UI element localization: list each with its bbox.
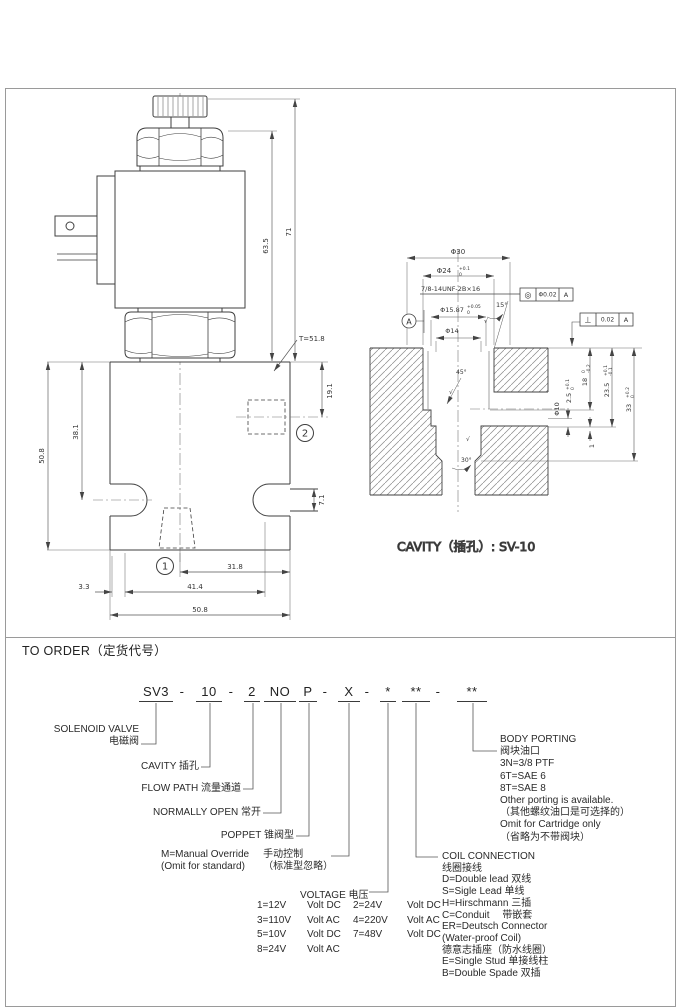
- dim-depth-18: 18: [581, 378, 589, 386]
- voltage-cell: Volt AC: [307, 944, 353, 955]
- datum-a: A: [402, 310, 424, 333]
- code-seg-flow-path: 2: [244, 684, 260, 702]
- second-terminal: [57, 254, 97, 260]
- voltage-cell: 5=10V: [257, 929, 307, 940]
- dim-edge-gap: 3.3: [78, 583, 89, 591]
- code-seg-voltage: *: [380, 684, 396, 702]
- voltage-cell: 4=220V: [353, 915, 407, 926]
- dim-depth-33-sub: 0: [630, 395, 636, 398]
- porting-item: （省略为不带阀块）: [500, 832, 630, 844]
- dim-depth-18-sub: -0.2: [586, 364, 592, 373]
- coil-item: 德意志插座（防水线圈）: [442, 945, 552, 957]
- dim-1: 1: [588, 444, 596, 448]
- dim-d24: Φ24: [437, 267, 452, 275]
- dim-d10: Φ10: [553, 402, 561, 415]
- code-seg-manual-override: X: [338, 684, 360, 702]
- dim-d14: Φ14: [445, 327, 458, 335]
- porting-item: 6T=SAE 6: [500, 771, 630, 783]
- gdt-conc-datum: A: [564, 291, 569, 299]
- dim-d24-sub: 0: [459, 272, 462, 278]
- code-sep: -: [433, 684, 443, 701]
- coil-item: H=Hirschmann 三插: [442, 898, 552, 910]
- gdt-perp-value: 0.02: [601, 317, 615, 324]
- porting-heading-zh: 阀块油口: [500, 746, 630, 758]
- port1-balloon: 1: [162, 562, 168, 573]
- angle-15: 15°: [496, 301, 508, 309]
- connector-plate: [97, 176, 115, 284]
- gdt-concentricity: ◎ Φ0.02 A: [520, 288, 573, 301]
- code-seg-body-porting: **: [457, 684, 487, 702]
- cavity-drawing: Φ30 Φ24 +0.1 0 7/8-14UNF-2B×16 Φ15.87 +0…: [370, 248, 642, 554]
- voltage-cell: Volt DC: [307, 929, 353, 940]
- label-flow-path: FLOW PATH 流量通道: [81, 783, 241, 795]
- voltage-heading: VOLTAGE 电压: [300, 886, 368, 901]
- dim-depth-2-5-sub: 0: [570, 387, 576, 390]
- voltage-table: 1=12V Volt DC 2=24V Volt DC 3=110V Volt …: [257, 900, 453, 955]
- dim-body-width: 50.8: [192, 606, 208, 614]
- coil-item: D=Double lead 双线: [442, 874, 552, 886]
- voltage-cell: 8=24V: [257, 944, 307, 955]
- perpendicularity-icon: ⊥: [585, 316, 592, 325]
- manual-override-zh1: 手动控制: [263, 849, 333, 861]
- code-seg-cavity: 10: [196, 684, 222, 702]
- coil-connection-block: COIL CONNECTION 线圈接线 D=Double lead 双线 S=…: [442, 851, 552, 980]
- code-sep: -: [362, 684, 372, 701]
- dim-d15-87-sub: 0: [467, 310, 470, 316]
- manual-override-en1: M=Manual Override: [161, 849, 249, 861]
- dim-d30: Φ30: [451, 248, 465, 256]
- porting-heading-en: BODY PORTING: [500, 734, 630, 746]
- dim-depth-23-5-sub: -0.1: [608, 367, 614, 376]
- valve-body-block: [93, 362, 328, 550]
- code-seg-model: SV3: [139, 684, 173, 702]
- manual-override-knob: [153, 96, 207, 128]
- dim-coil-height: 63.5: [262, 238, 270, 254]
- dim-stub-width: 7.1: [318, 494, 326, 505]
- label-solenoid-valve: SOLENOID VALVE 电磁阀: [39, 724, 139, 747]
- cavity-caption: CAVITY（插孔）: SV-10: [397, 539, 535, 554]
- coil-item: E=Single Stud 单接线柱: [442, 956, 552, 968]
- voltage-cell: 3=110V: [257, 915, 307, 926]
- dim-depth-2-5: 2.5: [565, 393, 573, 403]
- spade-terminal: [55, 216, 97, 236]
- note-t-dim: T=51.8: [298, 335, 325, 343]
- drawings-svg: 63.5 71 50.8 38.1 19.1 7.1 31.8 41.4 3.3…: [0, 0, 680, 1008]
- code-sep: -: [177, 684, 187, 701]
- porting-item: （其他螺纹油口是可选择的）: [500, 807, 630, 819]
- code-seg-coil-connection: **: [402, 684, 430, 702]
- code-sep: -: [226, 684, 236, 701]
- code-seg-normally-open: NO: [264, 684, 296, 702]
- coil-body: [55, 171, 245, 308]
- dim-port2-depth: 19.1: [326, 383, 334, 399]
- code-sep: -: [320, 684, 330, 701]
- gdt-perp-datum: A: [624, 316, 629, 324]
- voltage-cell: 1=12V: [257, 900, 307, 911]
- coil-item: (Water-proof Coil): [442, 933, 552, 945]
- porting-item: Other porting is available.: [500, 795, 630, 807]
- angle-30: 30°: [461, 457, 472, 464]
- dim-port-span: 41.4: [187, 583, 203, 591]
- voltage-cell: 7=48V: [353, 929, 407, 940]
- dim-d15-87: Φ15.87: [440, 306, 464, 314]
- manual-override-zh2: （标准型忽略）: [263, 861, 333, 873]
- roughness-icon: √: [466, 436, 470, 443]
- valve-drawing: 63.5 71 50.8 38.1 19.1 7.1 31.8 41.4 3.3…: [38, 93, 334, 620]
- concentricity-icon: ◎: [525, 291, 532, 300]
- dim-port1-offset: 31.8: [227, 563, 243, 571]
- terminal-hole: [66, 222, 74, 230]
- roughness-icon: √: [484, 318, 488, 325]
- coil-item: ER=Deutsch Connector: [442, 921, 552, 933]
- porting-item: 8T=SAE 8: [500, 783, 630, 795]
- dim-body-height: 50.8: [38, 448, 46, 464]
- dim-depth-33: 33: [625, 404, 633, 412]
- datasheet-page: 63.5 71 50.8 38.1 19.1 7.1 31.8 41.4 3.3…: [0, 0, 680, 1008]
- label-manual-override: M=Manual Override (Omit for standard) 手动…: [161, 849, 333, 872]
- right-side-port: [253, 484, 290, 516]
- coil-heading-zh: 线圈接线: [442, 863, 552, 875]
- dim-total-height: 71: [285, 228, 293, 237]
- top-nut: [137, 128, 223, 171]
- voltage-cell: [353, 944, 407, 955]
- order-section-title: TO ORDER（定货代号）: [22, 640, 167, 659]
- manual-override-en2: (Omit for standard): [161, 861, 249, 873]
- coil-item: S=Sigle Lead 单线: [442, 886, 552, 898]
- gdt-conc-value: Φ0.02: [538, 292, 556, 299]
- voltage-cell: Volt DC: [307, 900, 353, 911]
- label-poppet: POPPET 锥阀型: [134, 830, 294, 842]
- solenoid-valve-zh: 电磁阀: [39, 736, 139, 748]
- roughness-icon: √: [449, 389, 453, 396]
- label-normally-open: NORMALLY OPEN 常开: [99, 807, 261, 819]
- dim-d24-sup: +0.1: [459, 266, 470, 272]
- port1-hidden-hole: [159, 508, 195, 548]
- porting-item: Omit for Cartridge only: [500, 819, 630, 831]
- porting-item: 3N=3/8 PTF: [500, 758, 630, 770]
- dim-d15-87-sup: +0.05: [467, 304, 481, 310]
- dim-depth-23-5: 23.5: [603, 383, 611, 397]
- label-cavity: CAVITY 插孔: [61, 761, 199, 773]
- dim-side-port-center: 38.1: [72, 424, 80, 440]
- solenoid-valve-en: SOLENOID VALVE: [39, 724, 139, 736]
- coil-item: B=Double Spade 双插: [442, 968, 552, 980]
- voltage-cell: Volt AC: [307, 915, 353, 926]
- dim-thread: 7/8-14UNF-2B×16: [421, 285, 480, 293]
- angle-45: 45°: [456, 369, 467, 376]
- port2-balloon: 2: [302, 429, 308, 440]
- coil-heading-en: COIL CONNECTION: [442, 851, 552, 863]
- coil-item: C=Conduit 带嵌套: [442, 910, 552, 922]
- bottom-nut: [125, 308, 235, 362]
- voltage-cell: 2=24V: [353, 900, 407, 911]
- body-porting-block: BODY PORTING 阀块油口 3N=3/8 PTF 6T=SAE 6 8T…: [500, 734, 630, 844]
- code-seg-poppet: P: [299, 684, 317, 702]
- gdt-perpendicularity: ⊥ 0.02 A: [572, 313, 633, 346]
- datum-a-label: A: [406, 318, 412, 327]
